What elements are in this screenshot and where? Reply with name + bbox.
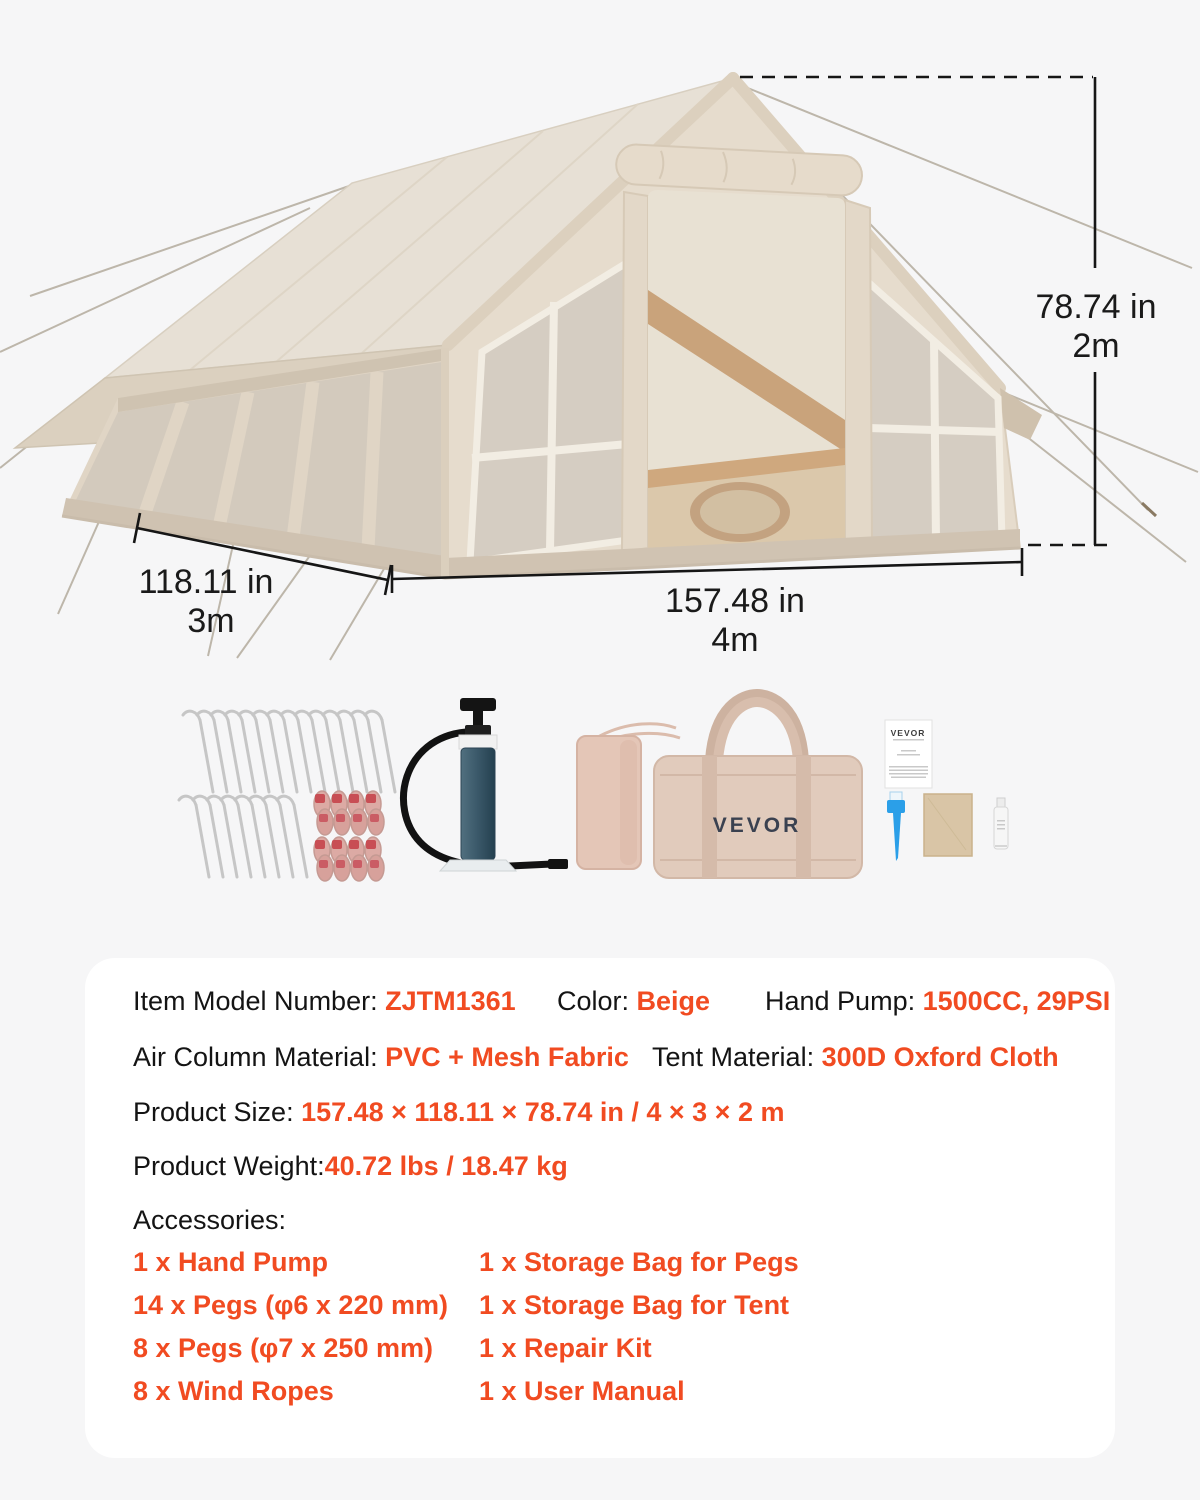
spec-hand-pump-value: 1500CC, 29PSI xyxy=(923,986,1111,1016)
spec-product-weight-value: 40.72 lbs / 18.47 kg xyxy=(325,1151,568,1181)
spec-color-label: Color: xyxy=(557,986,637,1016)
spec-item-model: Item Model Number: ZJTM1361 xyxy=(133,984,516,1018)
wind-ropes xyxy=(314,791,384,881)
manual-logo: VEVOR xyxy=(891,728,926,738)
door-beam-right xyxy=(845,200,872,545)
pegs-large xyxy=(179,796,307,877)
tent-hero-figure: 78.74 in 2m 118.11 in 3m 157.48 in 4m xyxy=(0,0,1200,680)
spec-panel: Item Model Number: ZJTM1361 Color: Beige… xyxy=(85,958,1115,1458)
spec-tent-material-value: 300D Oxford Cloth xyxy=(822,1042,1059,1072)
accessory-item: 1 x Repair Kit xyxy=(479,1331,652,1365)
accessory-item: 8 x Wind Ropes xyxy=(133,1374,334,1408)
spec-tent-material: Tent Material: 300D Oxford Cloth xyxy=(652,1040,1059,1074)
spec-product-size-label: Product Size: xyxy=(133,1097,301,1127)
spec-air-column-value: PVC + Mesh Fabric xyxy=(385,1042,629,1072)
spec-row-product-size: Product Size: 157.48 × 118.11 × 78.74 in… xyxy=(133,1095,784,1129)
spec-air-column: Air Column Material: PVC + Mesh Fabric xyxy=(133,1040,629,1074)
spec-item-model-label: Item Model Number: xyxy=(133,986,385,1016)
repair-kit-patch xyxy=(924,794,972,856)
accessories-figure: VEVOR VEVOR xyxy=(0,680,1200,930)
spec-hand-pump: Hand Pump: 1500CC, 29PSI xyxy=(765,984,1110,1018)
product-infographic-page: 78.74 in 2m 118.11 in 3m 157.48 in 4m xyxy=(0,0,1200,1500)
accessory-item: 1 x Storage Bag for Pegs xyxy=(479,1245,799,1279)
tent-illustration xyxy=(15,78,1042,578)
accessory-item: 1 x Hand Pump xyxy=(133,1245,328,1279)
spec-tent-material-label: Tent Material: xyxy=(652,1042,822,1072)
spec-hand-pump-label: Hand Pump: xyxy=(765,986,923,1016)
spec-accessories-heading: Accessories: xyxy=(133,1203,286,1237)
dim-width-m: 4m xyxy=(711,621,758,659)
accessory-item: 14 x Pegs (φ6 x 220 mm) xyxy=(133,1288,448,1322)
user-manual: VEVOR xyxy=(885,720,932,788)
spec-product-size-value: 157.48 × 118.11 × 78.74 in / 4 × 3 × 2 m xyxy=(301,1097,784,1127)
dim-depth-m: 3m xyxy=(187,602,234,640)
dim-depth-in: 118.11 in xyxy=(139,563,274,601)
tent-bag-logo: VEVOR xyxy=(713,814,802,837)
dim-height-in: 78.74 in xyxy=(1036,288,1157,326)
accessory-item: 1 x Storage Bag for Tent xyxy=(479,1288,789,1322)
dim-height-m: 2m xyxy=(1072,327,1119,365)
dim-width-in: 157.48 in xyxy=(665,582,805,620)
hand-pump xyxy=(403,698,568,871)
rope-stake xyxy=(1142,503,1156,516)
spec-accessories-heading-label: Accessories: xyxy=(133,1205,286,1235)
spec-air-column-label: Air Column Material: xyxy=(133,1042,385,1072)
spec-product-weight-label: Product Weight: xyxy=(133,1151,325,1181)
accessory-item: 8 x Pegs (φ7 x 250 mm) xyxy=(133,1331,433,1365)
repair-kit-brush xyxy=(887,792,905,861)
accessory-item: 1 x User Manual xyxy=(479,1374,685,1408)
spec-item-model-value: ZJTM1361 xyxy=(385,986,516,1016)
tent-storage-bag: VEVOR xyxy=(654,694,862,878)
repair-kit-glue-tube xyxy=(994,798,1008,849)
spec-row-product-weight: Product Weight:40.72 lbs / 18.47 kg xyxy=(133,1149,568,1183)
pegs-small xyxy=(183,711,395,792)
spec-color-value: Beige xyxy=(637,986,711,1016)
door-beam-left xyxy=(622,192,648,552)
spec-color: Color: Beige xyxy=(557,984,710,1018)
